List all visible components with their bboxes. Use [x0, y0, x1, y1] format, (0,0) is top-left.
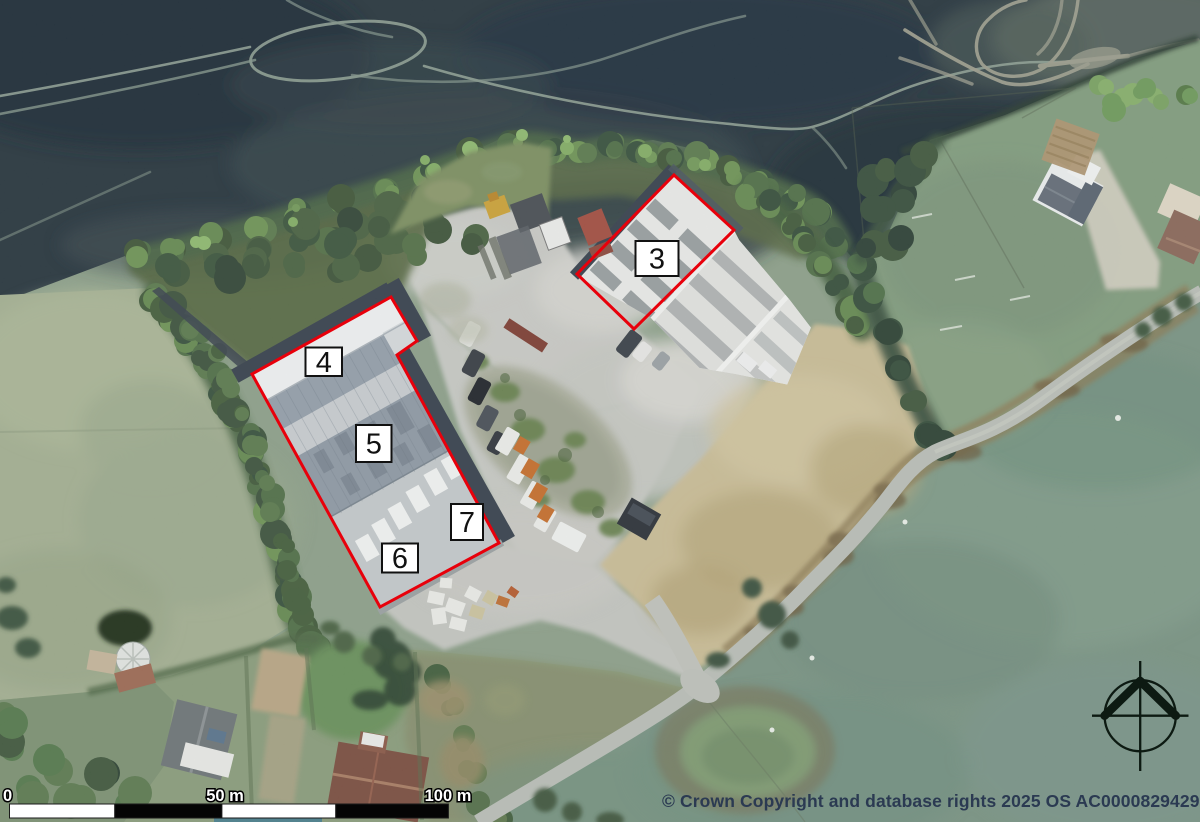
svg-text:© Crown Copyright and database: © Crown Copyright and database rights 20… — [662, 791, 1200, 811]
svg-text:3: 3 — [649, 244, 665, 276]
svg-text:7: 7 — [459, 507, 475, 539]
svg-text:4: 4 — [316, 347, 332, 379]
svg-text:100 m: 100 m — [425, 787, 472, 805]
svg-text:6: 6 — [392, 543, 408, 575]
svg-text:0: 0 — [3, 787, 12, 805]
svg-text:50 m: 50 m — [206, 787, 244, 805]
svg-text:5: 5 — [366, 429, 382, 461]
